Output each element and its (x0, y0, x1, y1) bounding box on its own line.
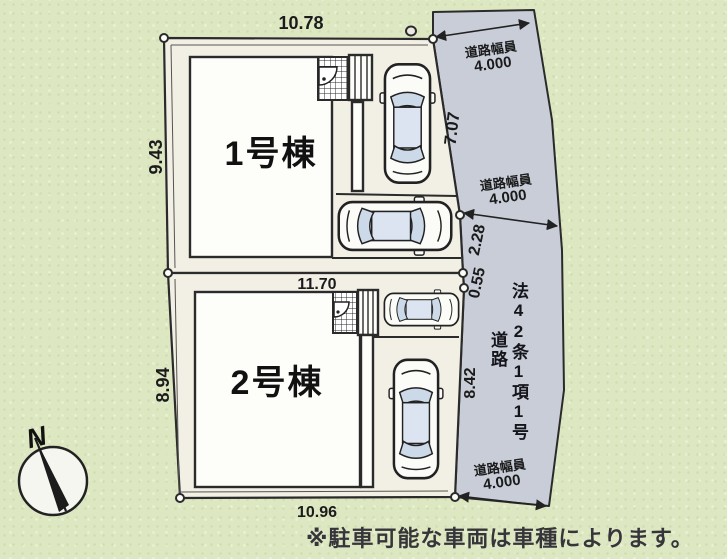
compass-north-label: N (23, 420, 50, 454)
site-plan-drawing: N (0, 0, 727, 559)
building-2-entrance-porch (333, 292, 357, 333)
dim-frontage-lower: 8.42 (463, 355, 479, 411)
dim-lot2-bottom: 10.96 (282, 505, 352, 521)
car-icon-lot1-vertical (380, 64, 435, 182)
car-icon-lot2-horizontal (384, 290, 458, 329)
site-plan: N 10.78 9.43 8.94 11.70 10.96 7.07 2.28 … (0, 0, 727, 559)
north-compass: N (19, 420, 87, 515)
road-name-line2: 道路 (485, 331, 510, 369)
dim-lot1-left: 9.43 (147, 127, 165, 187)
car-icon-lot2-vertical (389, 360, 443, 478)
utility-pole-icon (406, 27, 416, 36)
car-icon-lot1-horizontal (339, 197, 452, 255)
dim-lot-divider: 11.70 (282, 277, 352, 293)
building-1-entrance-porch (318, 57, 348, 100)
building-2-label: 2号棟 (221, 366, 333, 400)
dim-lot2-left: 8.94 (154, 355, 172, 415)
dim-lot1-top: 10.78 (266, 14, 336, 32)
parking-note: ※駐車可能な車両は車種によります。 (306, 528, 694, 550)
building-1-label: 1号棟 (215, 137, 327, 171)
